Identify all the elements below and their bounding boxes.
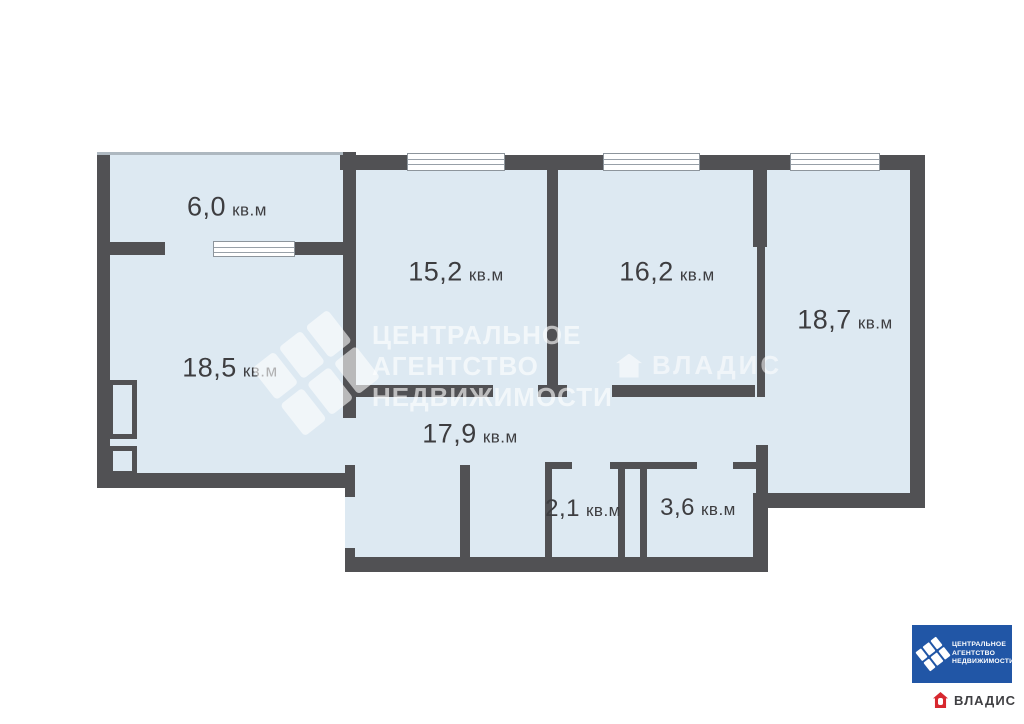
wall-vestibule — [460, 465, 470, 558]
room-label-wc: 2,1 кв.м — [545, 495, 621, 523]
room-label-bedroom2: 16,2 кв.м — [619, 257, 714, 288]
room-label-bedroom3: 18,7 кв.м — [797, 305, 892, 336]
vladis-logo: ВЛАДИС — [933, 692, 1016, 708]
wall-entry-lower — [345, 548, 355, 572]
ribbon-icon — [915, 637, 950, 672]
watermark-agency-line3: НЕДВИЖИМОСТИ — [372, 382, 613, 413]
vladis-house-icon — [933, 692, 948, 708]
room-unit-hallway: кв.м — [483, 428, 518, 448]
balcony-top-line — [97, 152, 353, 155]
window-bedroom1 — [407, 153, 505, 171]
wall-top-seg3 — [698, 155, 790, 170]
room-label-hallway: 17,9 кв.м — [422, 419, 517, 450]
room-unit-bathroom: кв.м — [701, 500, 736, 520]
wall-duct-right — [640, 469, 647, 557]
room-area-bedroom2: 16,2 — [619, 257, 674, 288]
wall-hall-top-right — [612, 385, 755, 397]
window-bedroom3 — [790, 153, 880, 171]
wall-bedroom2-right-thick — [753, 170, 767, 247]
watermark-agency-text: ЦЕНТРАЛЬНОЕ АГЕНТСТВО НЕДВИЖИМОСТИ — [372, 320, 613, 413]
room-area-bedroom1: 15,2 — [408, 257, 463, 288]
vladis-logo-text: ВЛАДИС — [954, 693, 1016, 708]
room-unit-wc: кв.м — [586, 501, 621, 521]
window-balcony — [213, 241, 295, 257]
house-icon — [616, 354, 642, 378]
wall-balcony-stub-right — [293, 242, 345, 255]
room-label-bedroom1: 15,2 кв.м — [408, 257, 503, 288]
room-area-wc: 2,1 — [545, 495, 580, 523]
room-area-living: 18,5 — [182, 353, 237, 384]
window-bedroom2 — [603, 153, 700, 171]
watermark-vladis-text: ВЛАДИС — [652, 350, 782, 381]
wall-passage-stub — [733, 462, 757, 469]
watermark-agency-line2: АГЕНТСТВО — [372, 351, 613, 382]
room-area-balcony: 6,0 — [187, 192, 226, 223]
wall-balcony-stub-left — [108, 242, 165, 255]
agency-logo: ЦЕНТРАЛЬНОЕ АГЕНТСТВО НЕДВИЖИМОСТИ — [912, 625, 1012, 683]
agency-logo-text: ЦЕНТРАЛЬНОЕ АГЕНТСТВО НЕДВИЖИМОСТИ — [952, 641, 1014, 667]
wall-wc-top-stub — [545, 462, 572, 469]
watermark-vladis: ВЛАДИС — [616, 350, 782, 381]
room-unit-bedroom2: кв.м — [680, 266, 715, 286]
wall-bottom-middle — [345, 557, 768, 572]
closet-box-lower — [108, 446, 137, 476]
room-unit-bedroom1: кв.м — [469, 266, 504, 286]
wall-bottom-right — [753, 493, 925, 508]
agency-logo-line2: АГЕНТСТВО — [952, 650, 1014, 659]
room-area-bathroom: 3,6 — [660, 494, 695, 522]
room-area-bedroom3: 18,7 — [797, 305, 852, 336]
closet-box-upper — [108, 380, 137, 439]
agency-logo-line1: ЦЕНТРАЛЬНОЕ — [952, 641, 1014, 650]
wall-right — [910, 155, 925, 508]
wall-top-seg2 — [503, 155, 603, 170]
room-unit-bedroom3: кв.м — [858, 314, 893, 334]
wall-bedroom3-door-stub — [756, 445, 768, 493]
wall-bath-top — [610, 462, 697, 469]
floor-plan-image: 6,0 кв.м 18,5 кв.м 15,2 кв.м 16,2 кв.м 1… — [0, 0, 1024, 724]
watermark-agency-line1: ЦЕНТРАЛЬНОЕ — [372, 320, 613, 351]
room-area-hallway: 17,9 — [422, 419, 477, 450]
room-unit-balcony: кв.м — [232, 201, 267, 221]
agency-logo-line3: НЕДВИЖИМОСТИ — [952, 658, 1014, 667]
wall-entry-upper — [345, 465, 355, 497]
room-label-bathroom: 3,6 кв.м — [660, 494, 736, 522]
room-label-balcony: 6,0 кв.м — [187, 192, 267, 223]
